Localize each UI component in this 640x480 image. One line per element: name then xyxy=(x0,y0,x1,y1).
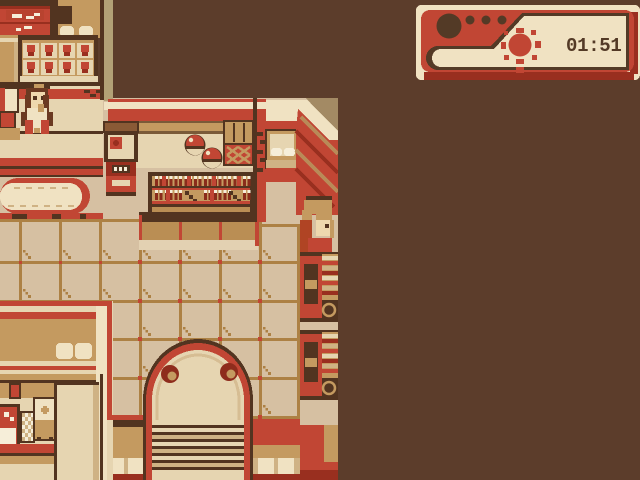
svg-text:01:51: 01:51 xyxy=(566,35,622,57)
